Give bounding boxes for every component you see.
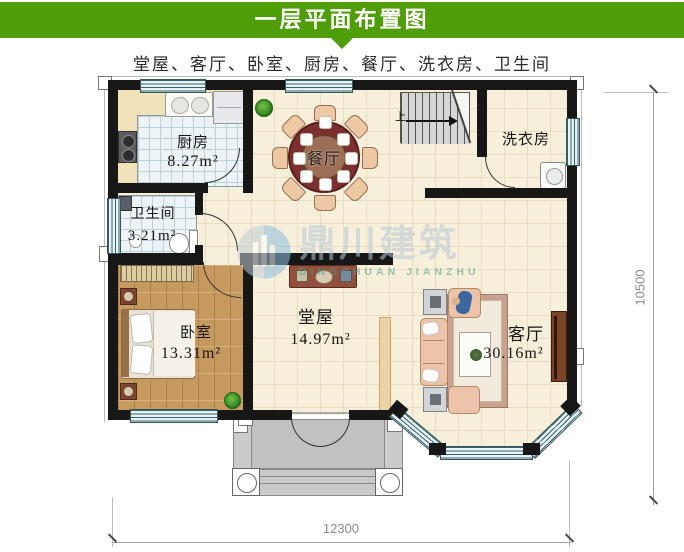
wall-bathroom-east-stub: [195, 193, 203, 215]
plant-icon: [255, 99, 273, 117]
plate-icon: [319, 116, 332, 129]
plate-icon: [319, 178, 332, 191]
kitchen-label: 厨房: [150, 131, 236, 152]
porch-steps: [251, 469, 385, 490]
bay-corner: [523, 443, 540, 455]
wall-living-north: [425, 188, 567, 198]
wall-kitchen-south: [118, 183, 208, 193]
plant-icon: [224, 392, 241, 409]
floor-plan-page: 一层平面布置图 堂屋、客厅、卧室、厨房、餐厅、洗衣房、卫生间: [0, 0, 684, 552]
kitchen-area-label: 8.27m²: [150, 153, 236, 171]
wall-bathroom-south: [108, 253, 203, 265]
dimension-line-right: [653, 93, 654, 505]
dining-chair: [362, 147, 378, 169]
kitchen-sink-icon: [165, 92, 213, 117]
stairs-direction-arrow: [406, 120, 450, 122]
window-kitchen-north: [140, 79, 206, 93]
sofa-icon: [420, 318, 448, 386]
porch-column-left: [232, 468, 260, 496]
hall-label: 堂屋: [281, 303, 351, 328]
living-area-label: 30.16m²: [471, 345, 556, 363]
width-dimension: 12300: [311, 521, 371, 536]
side-table-icon: [423, 387, 447, 412]
person-head: [452, 297, 460, 305]
stairs-up-label: 上: [395, 108, 407, 124]
watermark-logo-icon: [236, 224, 292, 280]
watermark: 鼎川建筑 DINGCHUAN JIANZHU: [236, 224, 480, 280]
living-label: 客厅: [491, 320, 561, 345]
porch-column-right: [375, 468, 403, 496]
dimension-line-bottom: [113, 542, 571, 543]
window-dining-north: [285, 79, 353, 93]
fridge-icon: [213, 91, 244, 124]
watermark-name: 鼎川建筑: [299, 226, 480, 263]
arrow-head-icon: [449, 116, 458, 126]
wall-stairs-laundry: [477, 85, 487, 157]
page-title: 一层平面布置图: [0, 2, 684, 38]
washing-machine-icon: [540, 162, 566, 189]
room-list-subtitle: 堂屋、客厅、卧室、厨房、餐厅、洗衣房、卫生间: [0, 50, 684, 75]
dining-chair: [314, 195, 336, 211]
bay-window-front: [440, 446, 533, 460]
nightstand-icon: [120, 383, 137, 400]
bedroom-label: 卧室: [153, 321, 239, 342]
height-dimension: 10500: [633, 265, 648, 311]
bathroom-area-label: 3.21m²: [116, 228, 188, 245]
dining-label: 餐厅: [296, 145, 352, 169]
bedroom-area-label: 13.31m²: [148, 345, 234, 363]
partition-screen: [379, 317, 391, 412]
entrance-threshold: [292, 412, 349, 414]
wall-kitchen-east: [243, 90, 253, 193]
bay-corner: [429, 443, 446, 455]
outline-top: [104, 76, 582, 77]
side-table-icon: [423, 289, 447, 315]
extension-line: [604, 92, 668, 93]
plate-icon: [300, 170, 313, 183]
header-pointer-triangle: [331, 38, 353, 49]
window-laundry-east: [566, 118, 580, 166]
armchair-icon: [448, 386, 480, 414]
watermark-latin: DINGCHUAN JIANZHU: [299, 266, 480, 278]
bed-icon: [121, 309, 195, 379]
hall-area-label: 14.97m²: [278, 331, 363, 349]
dining-chair: [272, 147, 288, 169]
bathroom-label: 卫生间: [117, 203, 189, 223]
window-bedroom-south: [130, 409, 218, 423]
laundry-label: 洗衣房: [492, 128, 560, 149]
stove-icon: [118, 131, 137, 163]
extension-line: [569, 460, 570, 547]
plate-icon: [337, 170, 350, 183]
wardrobe-icon: [120, 265, 194, 282]
nightstand-icon: [120, 288, 137, 305]
